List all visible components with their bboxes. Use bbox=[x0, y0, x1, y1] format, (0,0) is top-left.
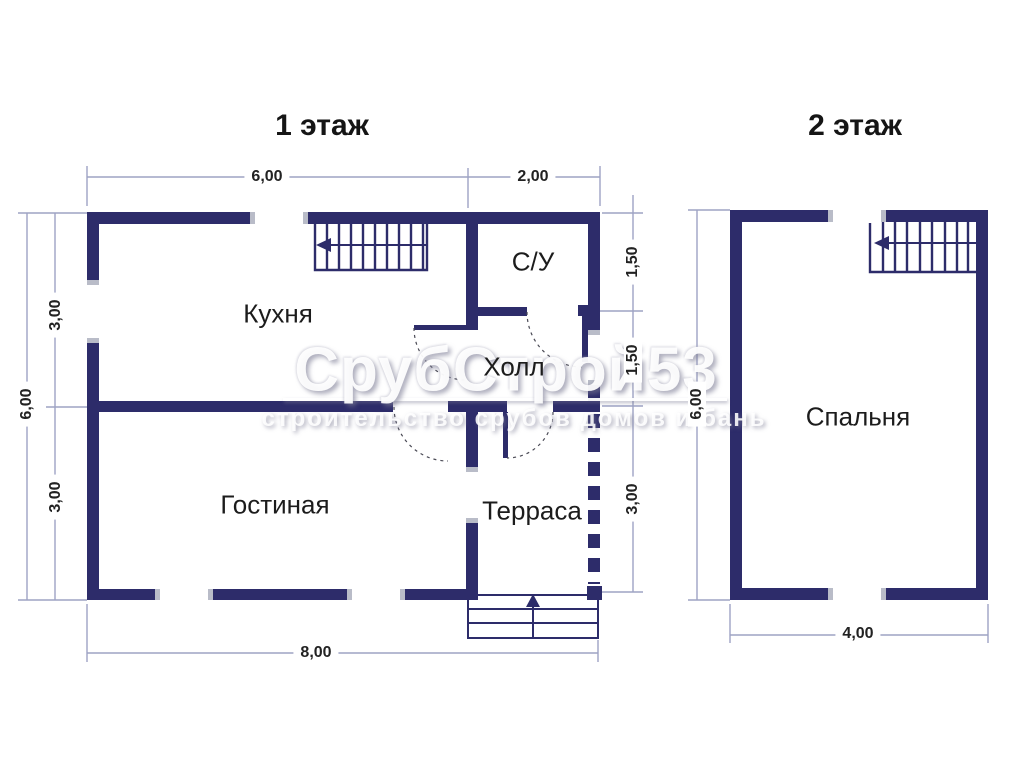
window bbox=[87, 280, 99, 343]
floor2-title: 2 этаж bbox=[808, 109, 902, 143]
floorplan-canvas: СрубСтрой53 строительство срубов домов и… bbox=[0, 0, 1024, 768]
dim-floor2-bottom: 4,00 bbox=[835, 625, 880, 643]
window bbox=[828, 210, 886, 222]
room-label-bathroom: С/У bbox=[512, 247, 555, 278]
window bbox=[466, 467, 478, 523]
dim-floor1-bottom: 8,00 bbox=[293, 644, 338, 662]
dim-floor1-right-lower: 3,00 bbox=[624, 476, 642, 521]
dim-floor1-right-middle: 1,50 bbox=[624, 337, 642, 382]
floor1-title: 1 этаж bbox=[275, 109, 369, 143]
room-label-terrace: Терраса bbox=[482, 496, 582, 527]
dim-floor1-right-upper: 1,50 bbox=[624, 239, 642, 284]
dim-floor1-left-upper: 3,00 bbox=[47, 292, 65, 337]
stairs-up-arrow bbox=[316, 238, 331, 252]
window bbox=[347, 589, 405, 600]
dim-floor2-left: 6,00 bbox=[688, 381, 706, 426]
window bbox=[155, 589, 213, 600]
room-label-bedroom: Спальня bbox=[806, 402, 910, 433]
dim-floor1-top-right: 2,00 bbox=[510, 168, 555, 186]
room-label-hall: Холл bbox=[483, 352, 544, 383]
dim-floor1-left-lower: 3,00 bbox=[47, 474, 65, 519]
room-label-living: Гостиная bbox=[220, 490, 329, 521]
window bbox=[828, 588, 886, 600]
stairs-floor1 bbox=[315, 224, 427, 270]
dim-floor1-top-left: 6,00 bbox=[244, 168, 289, 186]
window bbox=[250, 212, 308, 224]
dim-floor1-left-total: 6,00 bbox=[18, 381, 36, 426]
stairs-up-arrow bbox=[874, 236, 889, 250]
room-label-kitchen: Кухня bbox=[243, 299, 313, 330]
